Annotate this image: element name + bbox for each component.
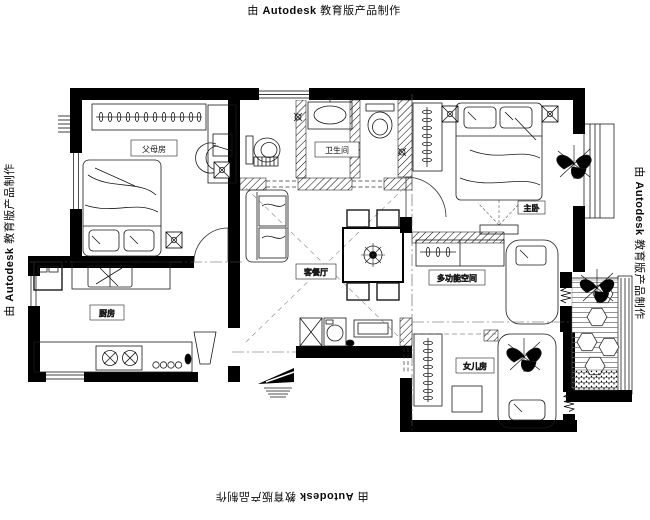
kitchen-sink [88, 266, 132, 287]
ceiling-fan-icon [542, 106, 558, 122]
kettle-icon [185, 354, 191, 364]
bed-parents [83, 160, 161, 256]
entry-arrow-icon [258, 368, 294, 397]
gravel-area [574, 370, 618, 390]
ceiling-fan-icon [166, 232, 182, 248]
desk [452, 386, 482, 412]
toilet [366, 104, 394, 138]
bed-master [456, 103, 542, 200]
floor-drain [254, 157, 278, 166]
door-stop-icon [346, 340, 354, 346]
plant-icon [557, 145, 591, 179]
counter [34, 342, 192, 372]
washing-machine [324, 318, 346, 346]
room-living-dining: 客餐厅 [246, 190, 403, 300]
toilet [246, 136, 280, 164]
ceiling-fan-icon [214, 162, 230, 178]
wardrobe [413, 103, 442, 171]
room-daughter: 女儿房 [414, 334, 556, 428]
room-label-kitchen: 厨房 [99, 308, 115, 318]
floorplan-svg: 主卧 客餐厅 多功能空间 厨房 [0, 0, 650, 520]
room-label-master: 主卧 [524, 203, 540, 213]
windows [28, 88, 632, 412]
sink [308, 97, 352, 129]
room-label-multipurpose: 多功能空间 [437, 273, 477, 283]
stove [96, 346, 142, 370]
daybed [506, 240, 558, 324]
room-labels: 父母房 卫生间 [131, 140, 359, 157]
bench [354, 320, 392, 337]
room-label-daughter: 女儿房 [463, 361, 487, 371]
balcony [572, 269, 619, 390]
room-label-parents: 父母房 [142, 144, 166, 154]
plant-icon [507, 338, 541, 372]
room-label-bathroom: 卫生间 [325, 145, 349, 155]
room-label-living: 客餐厅 [304, 267, 328, 277]
dish-rack [153, 362, 182, 368]
floorplan-page: { "watermark": { "prefix": "由", "brand":… [0, 0, 650, 520]
sofa [246, 190, 288, 262]
room-parents [83, 104, 236, 256]
dining-table [343, 210, 403, 300]
bed-daughter [498, 334, 556, 428]
room-master: 主卧 [413, 103, 591, 234]
room-kitchen: 厨房 [34, 262, 192, 372]
room-multipurpose: 多功能空间 [416, 240, 558, 324]
